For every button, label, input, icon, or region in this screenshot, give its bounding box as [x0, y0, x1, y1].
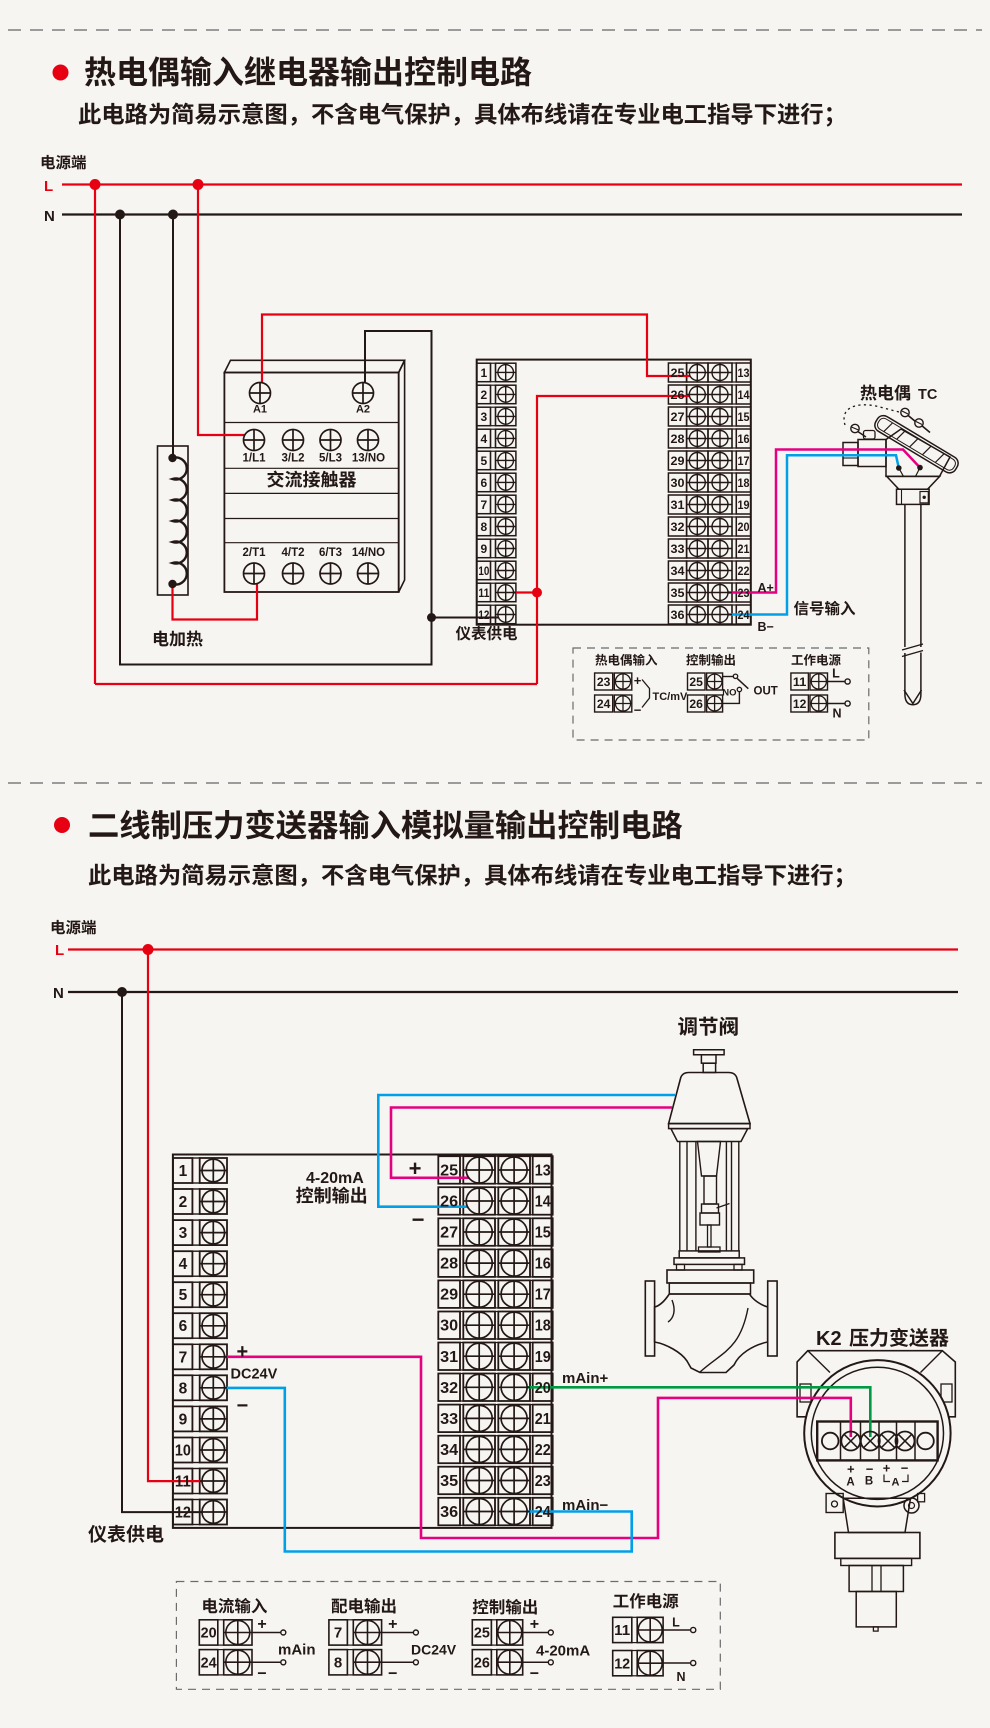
svg-text:25: 25 [474, 1625, 490, 1642]
svg-text:34: 34 [671, 564, 685, 578]
svg-text:25: 25 [689, 677, 703, 689]
svg-text:15: 15 [535, 1225, 551, 1242]
svg-text:13: 13 [738, 366, 750, 380]
svg-text:3: 3 [481, 410, 488, 424]
svg-text:13/NO: 13/NO [352, 453, 385, 465]
svg-text:33: 33 [671, 542, 685, 556]
svg-text:N: N [676, 1670, 685, 1684]
svg-text:33: 33 [440, 1411, 458, 1428]
svg-text:N: N [44, 208, 55, 225]
svg-text:35: 35 [440, 1473, 458, 1490]
svg-text:22: 22 [738, 564, 750, 578]
svg-text:14: 14 [535, 1194, 551, 1211]
svg-text:4: 4 [179, 1256, 188, 1273]
svg-text:32: 32 [440, 1380, 458, 1397]
svg-text:TC: TC [918, 387, 938, 403]
svg-text:5: 5 [179, 1287, 188, 1304]
svg-text:12: 12 [793, 699, 807, 711]
svg-text:20: 20 [535, 1380, 551, 1397]
svg-text:24: 24 [597, 699, 611, 711]
svg-text:21: 21 [535, 1411, 551, 1428]
svg-text:24: 24 [201, 1655, 218, 1672]
svg-text:+: + [847, 1462, 855, 1477]
svg-text:−: − [388, 1666, 397, 1683]
svg-text:14: 14 [738, 388, 750, 402]
svg-text:10: 10 [175, 1443, 191, 1460]
svg-text:−: − [634, 703, 642, 718]
svg-text:−: − [866, 1462, 874, 1477]
svg-text:8: 8 [481, 520, 488, 534]
svg-text:30: 30 [440, 1318, 458, 1335]
svg-text:5: 5 [481, 454, 488, 468]
svg-text:+: + [530, 1616, 539, 1633]
svg-text:L: L [832, 667, 840, 681]
svg-text:24: 24 [738, 608, 750, 622]
svg-text:23: 23 [535, 1473, 551, 1490]
svg-text:18: 18 [738, 476, 750, 490]
svg-text:+: + [237, 1341, 249, 1363]
svg-text:9: 9 [481, 542, 488, 556]
svg-text:K2: K2 [816, 1328, 842, 1350]
svg-text:L: L [44, 178, 53, 195]
svg-text:N: N [832, 707, 841, 721]
svg-text:26: 26 [671, 388, 685, 402]
svg-text:mAin−: mAin− [562, 1497, 609, 1514]
svg-text:B: B [865, 1476, 873, 1488]
svg-text:31: 31 [440, 1349, 458, 1366]
svg-text:1: 1 [481, 366, 488, 380]
svg-text:4: 4 [481, 432, 488, 446]
svg-text:5/L3: 5/L3 [319, 453, 342, 465]
svg-text:27: 27 [671, 410, 685, 424]
svg-text:8: 8 [334, 1655, 342, 1672]
svg-text:25: 25 [440, 1163, 458, 1180]
svg-text:+: + [388, 1616, 397, 1633]
svg-text:A+: A+ [758, 581, 774, 595]
svg-text:4-20mA: 4-20mA [306, 1170, 364, 1187]
svg-text:7: 7 [481, 498, 488, 512]
svg-text:6: 6 [481, 476, 488, 490]
svg-text:29: 29 [440, 1287, 458, 1304]
svg-text:11: 11 [175, 1474, 191, 1491]
svg-text:10: 10 [478, 564, 489, 578]
svg-text:22: 22 [535, 1442, 551, 1459]
svg-text:12: 12 [478, 608, 489, 622]
svg-text:OUT: OUT [754, 686, 778, 698]
svg-text:19: 19 [738, 498, 750, 512]
svg-text:16: 16 [738, 432, 750, 446]
svg-text:mAin+: mAin+ [562, 1370, 609, 1387]
svg-text:6: 6 [179, 1318, 188, 1335]
svg-text:3/L2: 3/L2 [281, 453, 304, 465]
svg-text:26: 26 [440, 1194, 458, 1211]
svg-text:12: 12 [175, 1505, 191, 1522]
svg-text:35: 35 [671, 586, 685, 600]
svg-text:17: 17 [535, 1287, 551, 1304]
svg-text:26: 26 [689, 699, 703, 711]
svg-text:−: − [237, 1395, 249, 1417]
svg-text:NO: NO [722, 688, 736, 699]
svg-text:8: 8 [179, 1380, 188, 1397]
svg-text:−: − [412, 1207, 425, 1232]
svg-text:+: + [883, 1461, 891, 1476]
svg-text:27: 27 [440, 1225, 458, 1242]
svg-text:2: 2 [179, 1194, 188, 1211]
svg-text:18: 18 [535, 1318, 551, 1335]
svg-text:36: 36 [440, 1504, 458, 1521]
svg-text:6/T3: 6/T3 [319, 547, 342, 559]
svg-text:11: 11 [793, 677, 807, 689]
svg-text:32: 32 [671, 520, 685, 534]
svg-text:23: 23 [597, 677, 611, 689]
svg-text:34: 34 [440, 1442, 458, 1459]
svg-text:28: 28 [440, 1256, 458, 1273]
svg-text:26: 26 [474, 1655, 490, 1672]
svg-text:7: 7 [334, 1625, 342, 1642]
svg-text:1/L1: 1/L1 [242, 453, 266, 465]
svg-text:N: N [53, 985, 64, 1002]
svg-text:20: 20 [201, 1625, 217, 1642]
svg-text:13: 13 [535, 1163, 551, 1180]
svg-text:31: 31 [671, 498, 685, 512]
svg-text:DC24V: DC24V [231, 1367, 278, 1383]
svg-text:4/T2: 4/T2 [281, 547, 304, 559]
svg-text:+: + [634, 673, 642, 688]
svg-text:−: − [257, 1666, 266, 1683]
svg-text:14/NO: 14/NO [352, 547, 385, 559]
svg-text:1: 1 [179, 1163, 188, 1180]
svg-text:7: 7 [179, 1349, 188, 1366]
svg-text:17: 17 [738, 454, 750, 468]
svg-text:30: 30 [671, 476, 685, 490]
svg-text:3: 3 [179, 1225, 188, 1242]
svg-text:29: 29 [671, 454, 685, 468]
svg-text:20: 20 [738, 520, 750, 534]
svg-text:+: + [257, 1616, 266, 1633]
svg-text:28: 28 [671, 432, 685, 446]
svg-text:19: 19 [535, 1349, 551, 1366]
svg-text:9: 9 [179, 1411, 188, 1428]
svg-text:TC/mV: TC/mV [653, 691, 689, 703]
svg-text:36: 36 [671, 608, 685, 622]
svg-text:24: 24 [535, 1504, 551, 1521]
svg-text:2/T1: 2/T1 [242, 547, 266, 559]
svg-text:2: 2 [481, 388, 488, 402]
svg-text:12: 12 [614, 1655, 630, 1672]
svg-text:L: L [672, 1616, 680, 1630]
svg-text:B−: B− [758, 620, 774, 634]
svg-text:DC24V: DC24V [411, 1642, 457, 1658]
svg-text:+: + [409, 1156, 422, 1181]
svg-text:−: − [901, 1461, 909, 1476]
svg-text:mAin: mAin [278, 1642, 316, 1659]
svg-text:11: 11 [614, 1622, 630, 1639]
svg-text:11: 11 [478, 586, 489, 600]
svg-text:16: 16 [535, 1256, 551, 1273]
svg-text:−: − [530, 1666, 539, 1683]
svg-text:25: 25 [671, 366, 685, 380]
svg-text:4-20mA: 4-20mA [536, 1643, 590, 1660]
svg-text:21: 21 [738, 542, 750, 556]
svg-text:A: A [846, 1477, 854, 1489]
svg-text:15: 15 [738, 410, 750, 424]
svg-text:A2: A2 [356, 404, 370, 416]
svg-text:A: A [892, 1477, 900, 1489]
svg-text:L: L [55, 942, 64, 959]
svg-text:23: 23 [738, 586, 750, 600]
svg-text:A1: A1 [253, 404, 267, 416]
